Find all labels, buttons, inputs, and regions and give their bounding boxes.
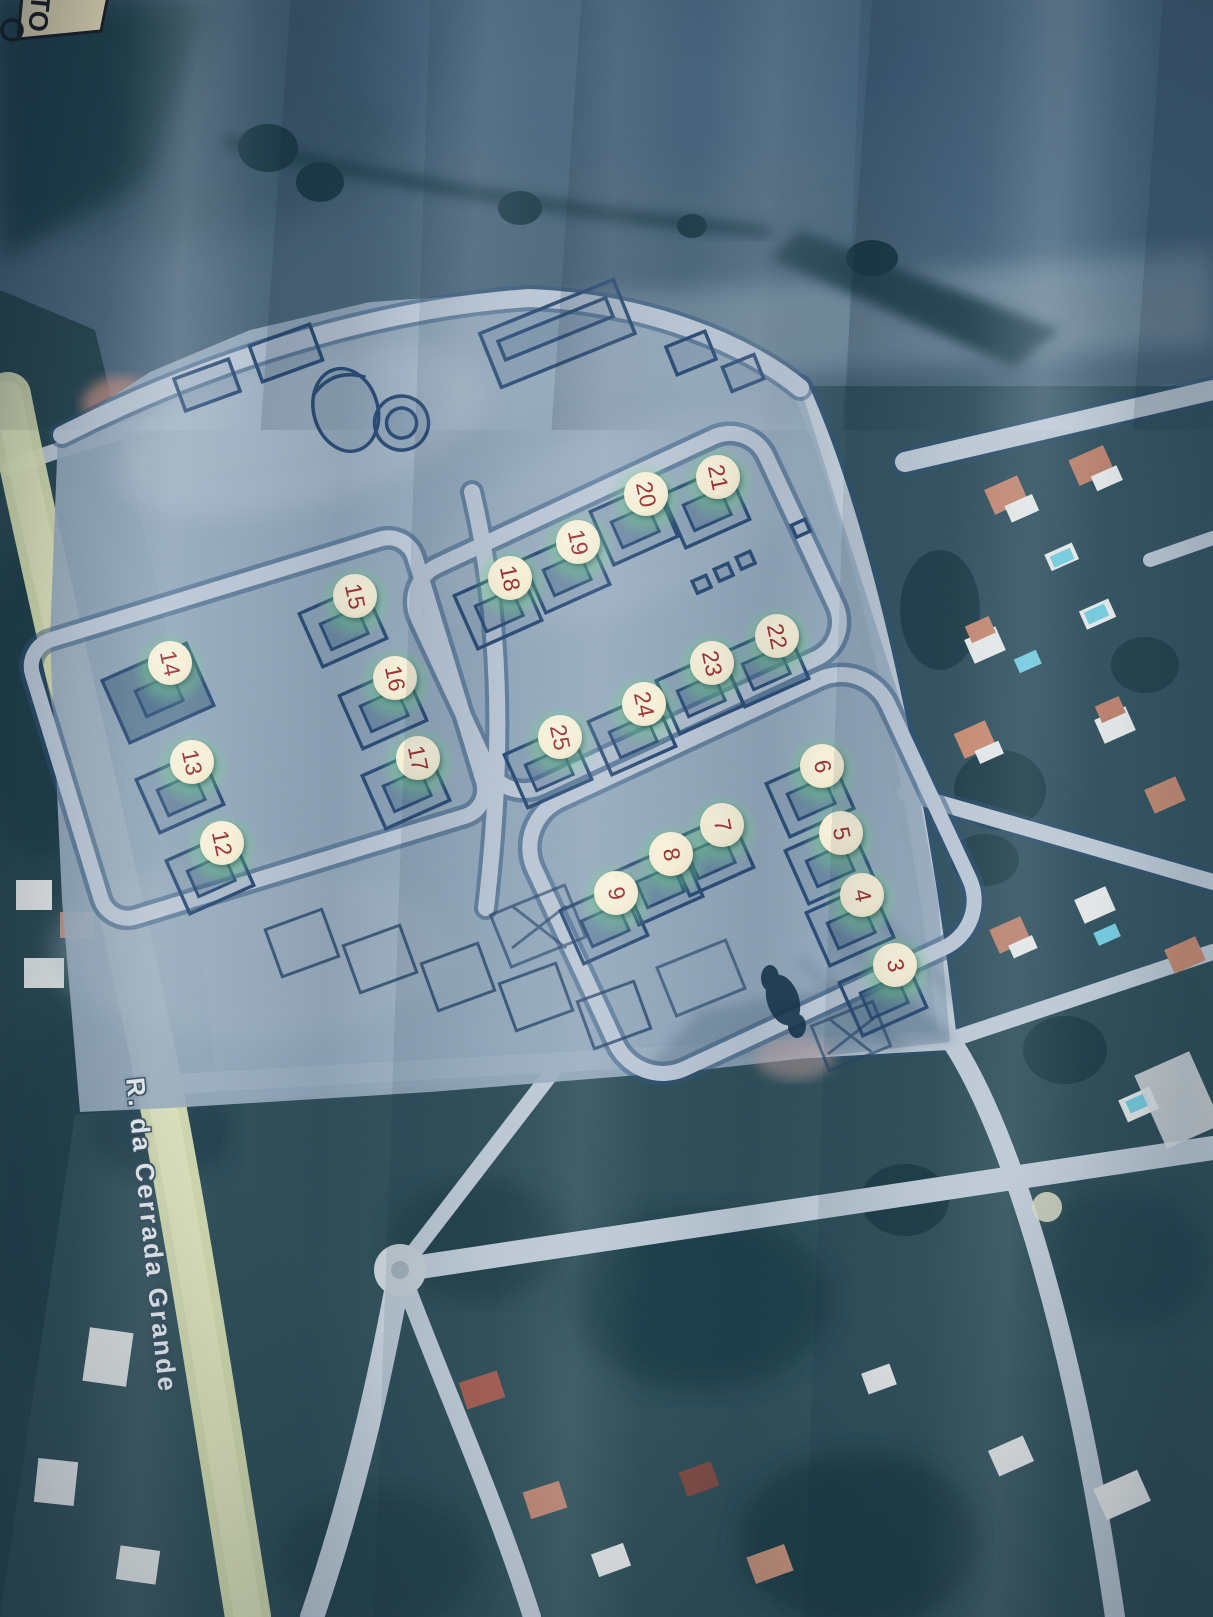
paper-grain xyxy=(0,0,1213,1617)
aerial-map-photo: TO 34567891213141516171819202122232425 R… xyxy=(0,0,1213,1617)
map-artwork: TO xyxy=(0,0,1213,1617)
